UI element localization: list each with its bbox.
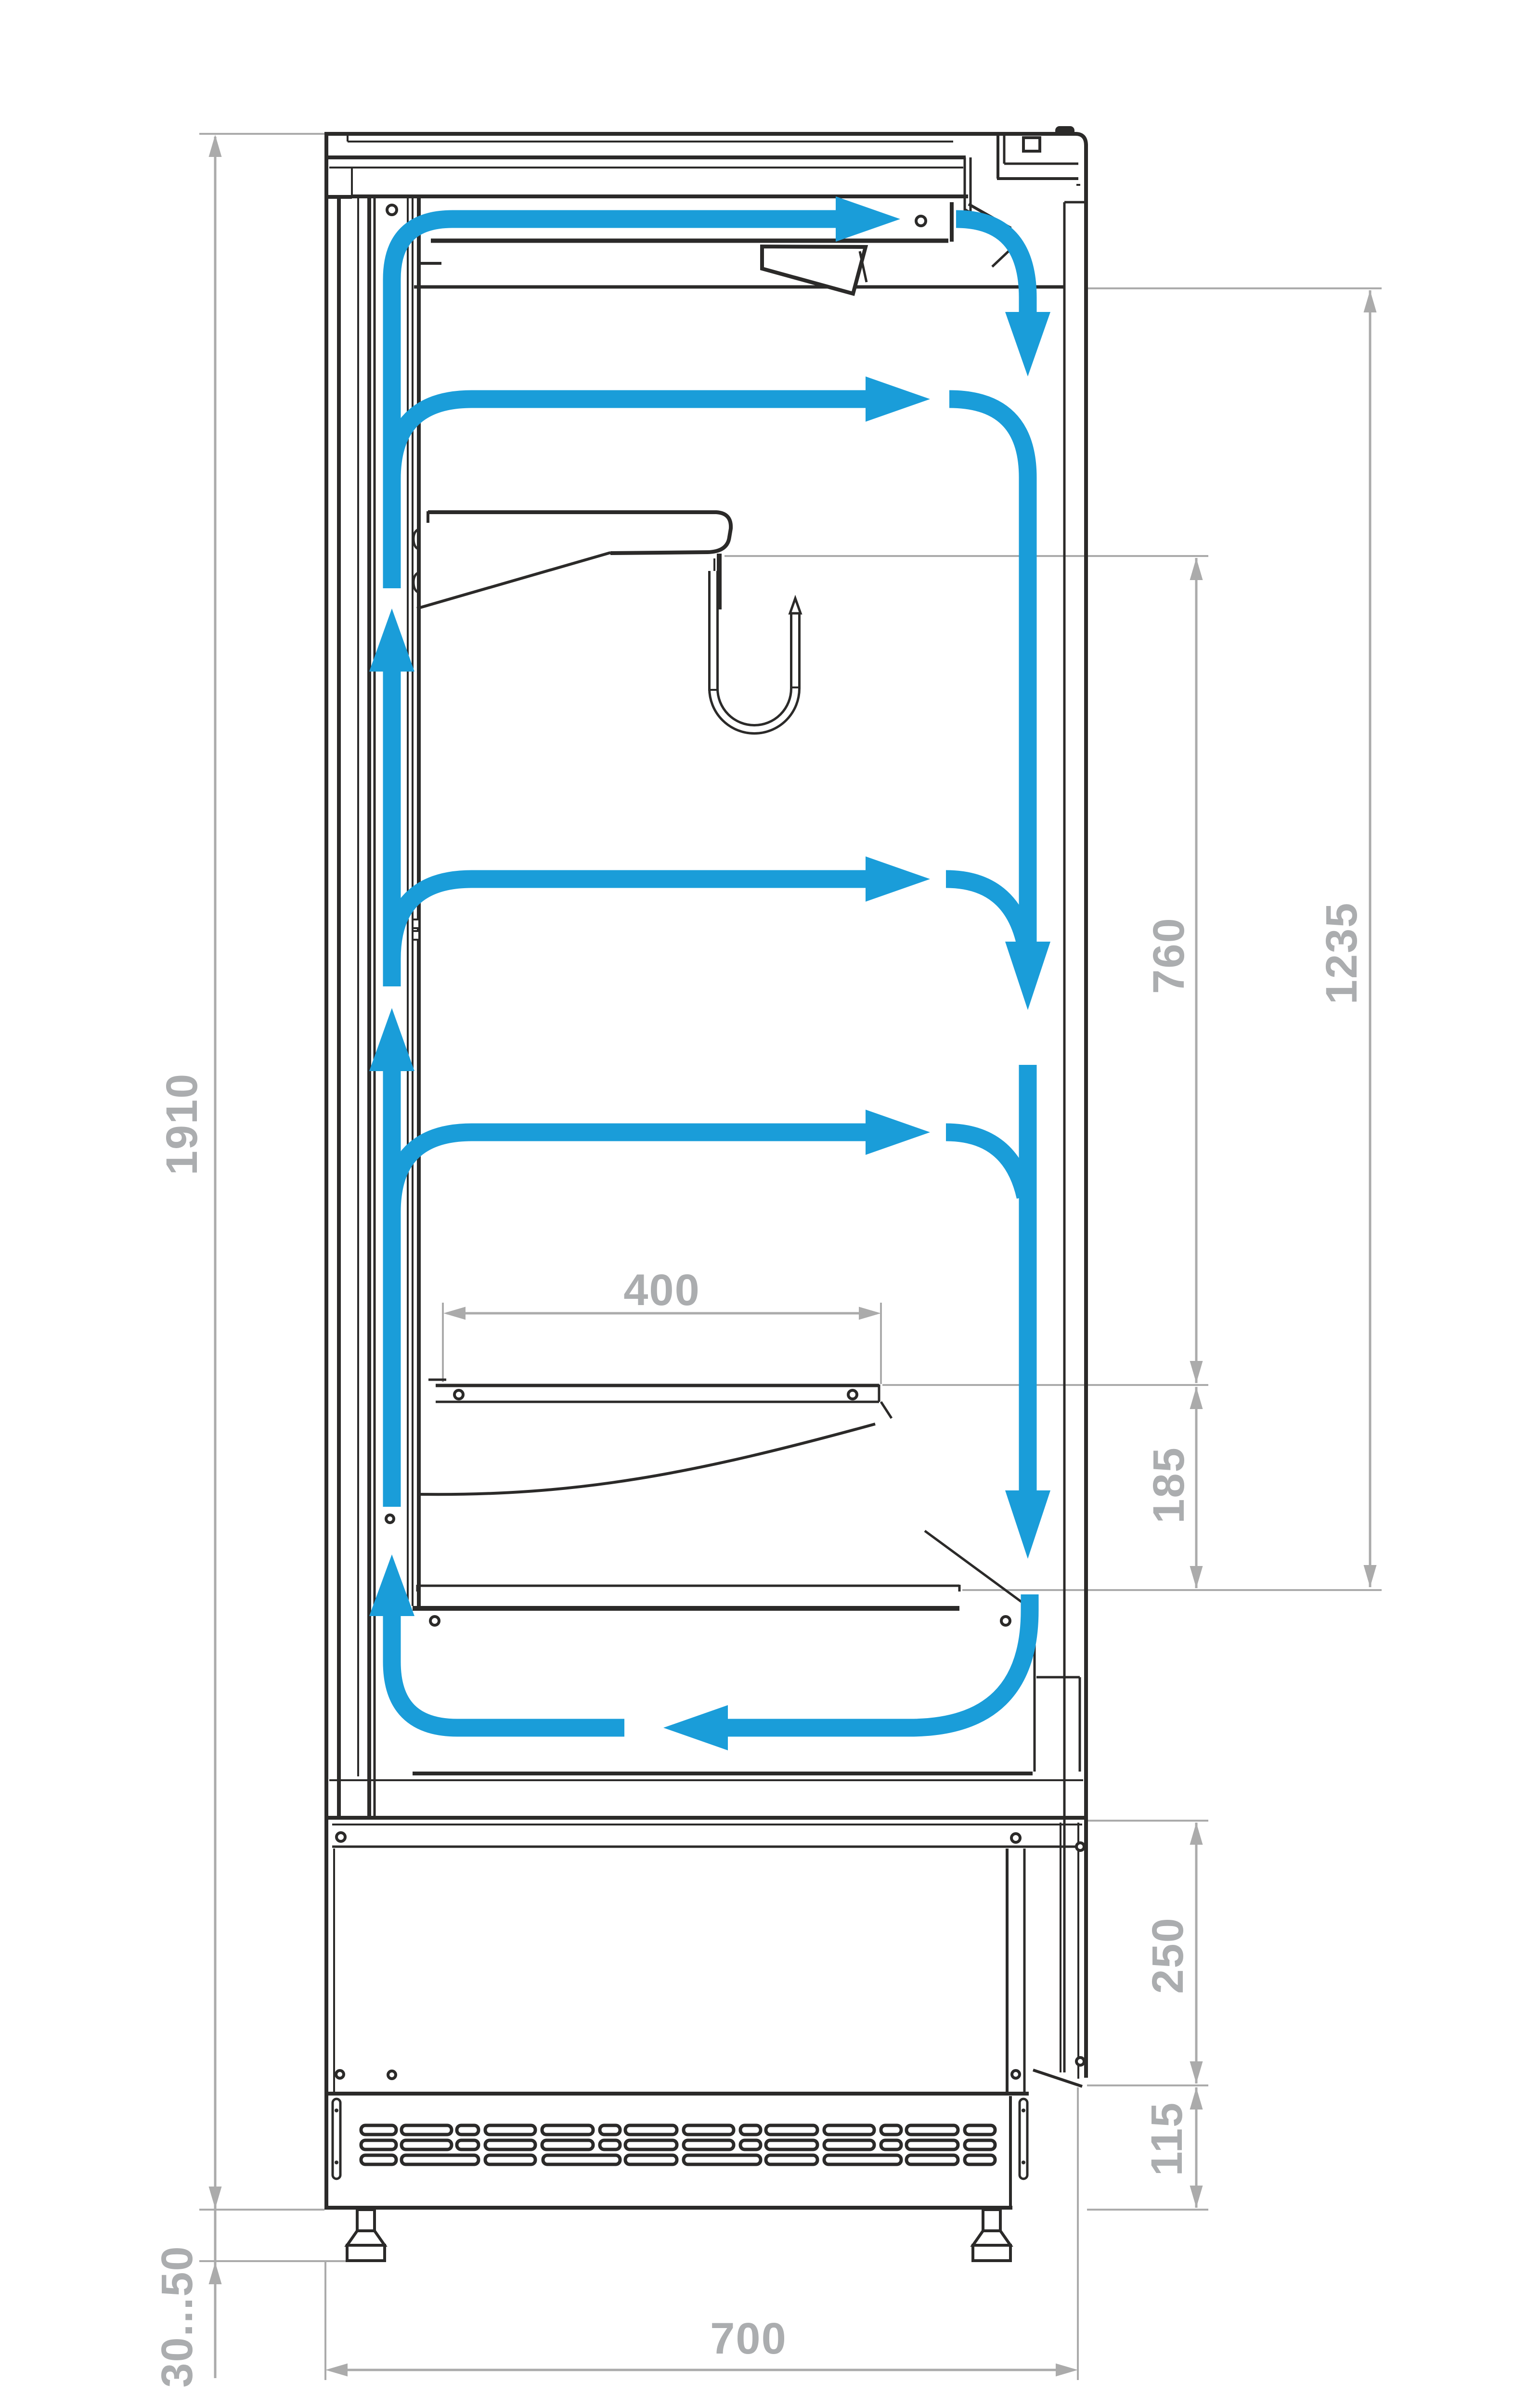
svg-text:30...50: 30...50 [153,2245,202,2387]
svg-text:115: 115 [1142,2102,1191,2176]
svg-text:185: 185 [1144,1447,1193,1524]
svg-text:1910: 1910 [157,1073,207,1176]
svg-text:400: 400 [623,1266,700,1315]
svg-text:1235: 1235 [1317,902,1366,1005]
svg-text:700: 700 [710,2314,787,2363]
svg-text:250: 250 [1143,1917,1192,1994]
svg-text:760: 760 [1144,917,1193,994]
